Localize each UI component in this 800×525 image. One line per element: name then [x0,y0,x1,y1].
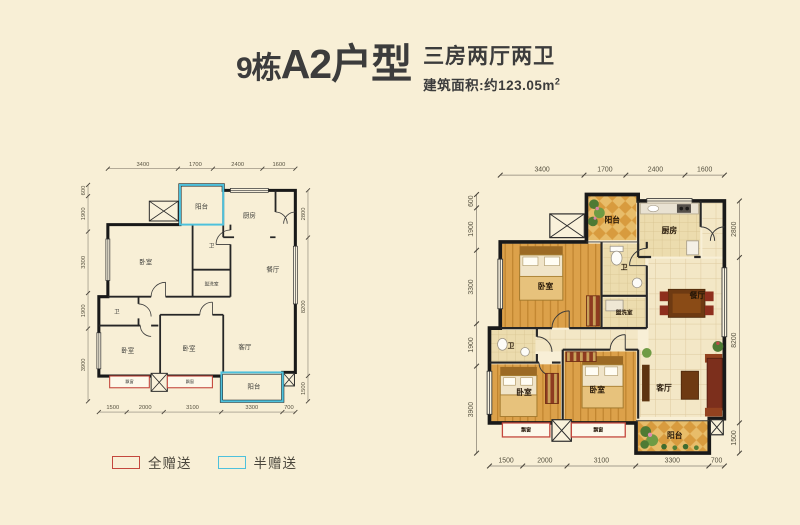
room-label-dining: 餐厅 [266,264,279,273]
room-label-bath-upper: 卫 [621,264,628,272]
dimension-value: 2400 [648,167,663,174]
dimension-value: 2400 [231,162,244,168]
dimension-value: 700 [284,405,294,411]
dimension-value: 1600 [272,162,285,168]
room-label-washroom: 盥洗室 [205,280,219,287]
room-label-bedroom-3: 卧室 [589,385,605,395]
room-label-bath-lower: 卫 [114,309,120,316]
dimension-value: 1900 [468,337,475,352]
half-gift-label: 半赠送 [254,452,298,472]
dimension-value: 1500 [301,382,307,395]
dimension-value: 3100 [186,405,199,411]
page-title: 9栋A2户型 [236,44,411,85]
legend-item-half-gift: 半赠送 [218,452,298,472]
dimension-value: 2800 [731,221,738,236]
dimension-value: 3400 [136,162,149,168]
legend: 全赠送 半赠送 [112,452,323,472]
dimension-value: 3300 [665,458,680,465]
dimension-value: 3100 [594,458,609,465]
half-gift-swatch [218,456,246,469]
dimension-value: 1900 [81,304,87,317]
room-label-bay-window-2: 飘窗 [592,426,603,433]
dimension-value: 8200 [731,332,738,347]
room-label-kitchen: 厨房 [662,225,678,235]
layout-description: 三房两厅两卫 [423,45,560,68]
dimension-value: 8200 [301,300,307,313]
floorplan-outline: 阳台厨房卧室卫盥洗室餐厅卫卧室卧室客厅阳台飘窗飘窗 34001700240016… [70,156,326,423]
room-label-balcony-bottom: 阳台 [667,430,683,440]
room-label-dining: 餐厅 [689,290,706,300]
dimension-value: 2000 [537,458,552,465]
room-label-bath-upper: 卫 [209,243,215,250]
room-label-living: 客厅 [656,383,672,393]
dimension-value: 1500 [498,458,513,465]
dimension-value: 3300 [245,405,258,411]
floorplan-rendered: 阳台厨房卧室卫盥洗室餐厅卫卧室卧室客厅阳台飘窗飘窗 34001700240016… [455,160,761,479]
room-label-bedroom-2: 卧室 [516,387,532,397]
dimension-value: 3400 [534,167,549,174]
dimension-value: 600 [81,186,87,196]
area-text: 建筑面积:约123.05m2 [423,74,560,94]
room-label-kitchen: 厨房 [243,210,256,219]
area-superscript: 2 [555,77,561,87]
dimension-value: 3300 [81,256,87,269]
dimension-value: 1700 [597,167,612,174]
dimension-value: 700 [711,458,723,465]
dimension-value: 600 [468,195,475,207]
room-label-balcony-top: 阳台 [195,201,208,210]
room-label-living: 客厅 [238,342,251,351]
dimension-value: 3900 [81,359,87,372]
room-label-bedroom-2: 卧室 [121,346,134,355]
dimension-value: 3900 [468,402,475,417]
dimension-value: 2800 [301,208,307,221]
room-label-bedroom-master: 卧室 [139,257,152,266]
room-label-bedroom-master: 卧室 [538,281,554,291]
title-side: 三房两厅两卫 建筑面积:约123.05m2 [423,45,560,94]
dimension-value: 1900 [468,221,475,236]
unit-type: A2户型 [281,41,411,87]
room-label-bay-window-1: 飘窗 [125,378,133,384]
dimension-value: 1500 [106,405,119,411]
room-label-bay-window-1: 飘窗 [520,426,531,433]
room-label-bath-lower: 卫 [508,342,515,350]
dimension-value: 1900 [81,207,87,220]
legend-item-full-gift: 全赠送 [112,452,192,472]
full-gift-label: 全赠送 [148,452,192,472]
room-label-bedroom-3: 卧室 [183,344,196,353]
room-label-bay-window-2: 飘窗 [186,378,194,384]
dimension-value: 1600 [697,167,712,174]
room-label-balcony-bottom: 阳台 [247,382,260,391]
dimension-value: 1500 [731,430,738,445]
room-label-washroom: 盥洗室 [616,309,633,317]
walls-layer [97,185,297,401]
header: 9栋A2户型 三房两厅两卫 建筑面积:约123.05m2 [236,44,560,94]
room-label-balcony-top: 阳台 [605,214,621,224]
dimension-value: 3300 [468,279,475,294]
dimension-value: 1700 [189,162,202,168]
building-number: 9栋 [236,52,281,85]
full-gift-swatch [112,456,140,469]
dimension-value: 2000 [139,405,152,411]
